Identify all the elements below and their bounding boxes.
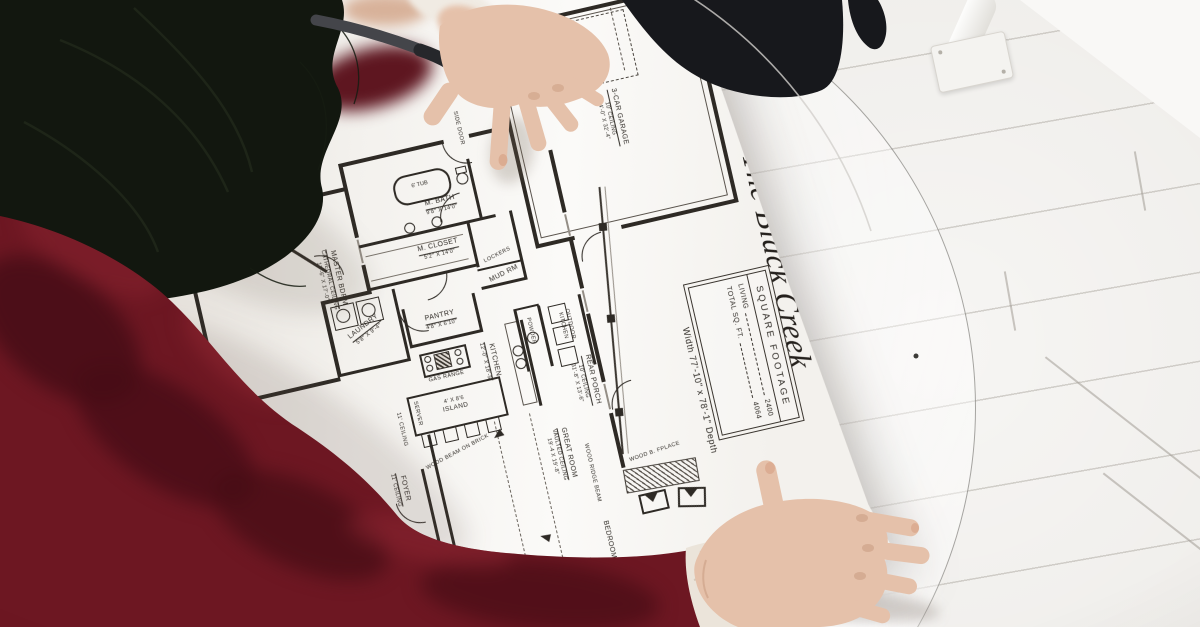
floor-dot	[914, 354, 919, 359]
black-clothing-strap	[848, 0, 886, 49]
resting-hand	[694, 459, 941, 627]
people-overlay	[0, 0, 1200, 627]
pointing-hand	[420, 5, 610, 188]
black-clothing	[622, 0, 843, 97]
photo-scene: MASTER BDRM CATHEDRAL CEILING 13'-6" X 1…	[0, 0, 1200, 627]
